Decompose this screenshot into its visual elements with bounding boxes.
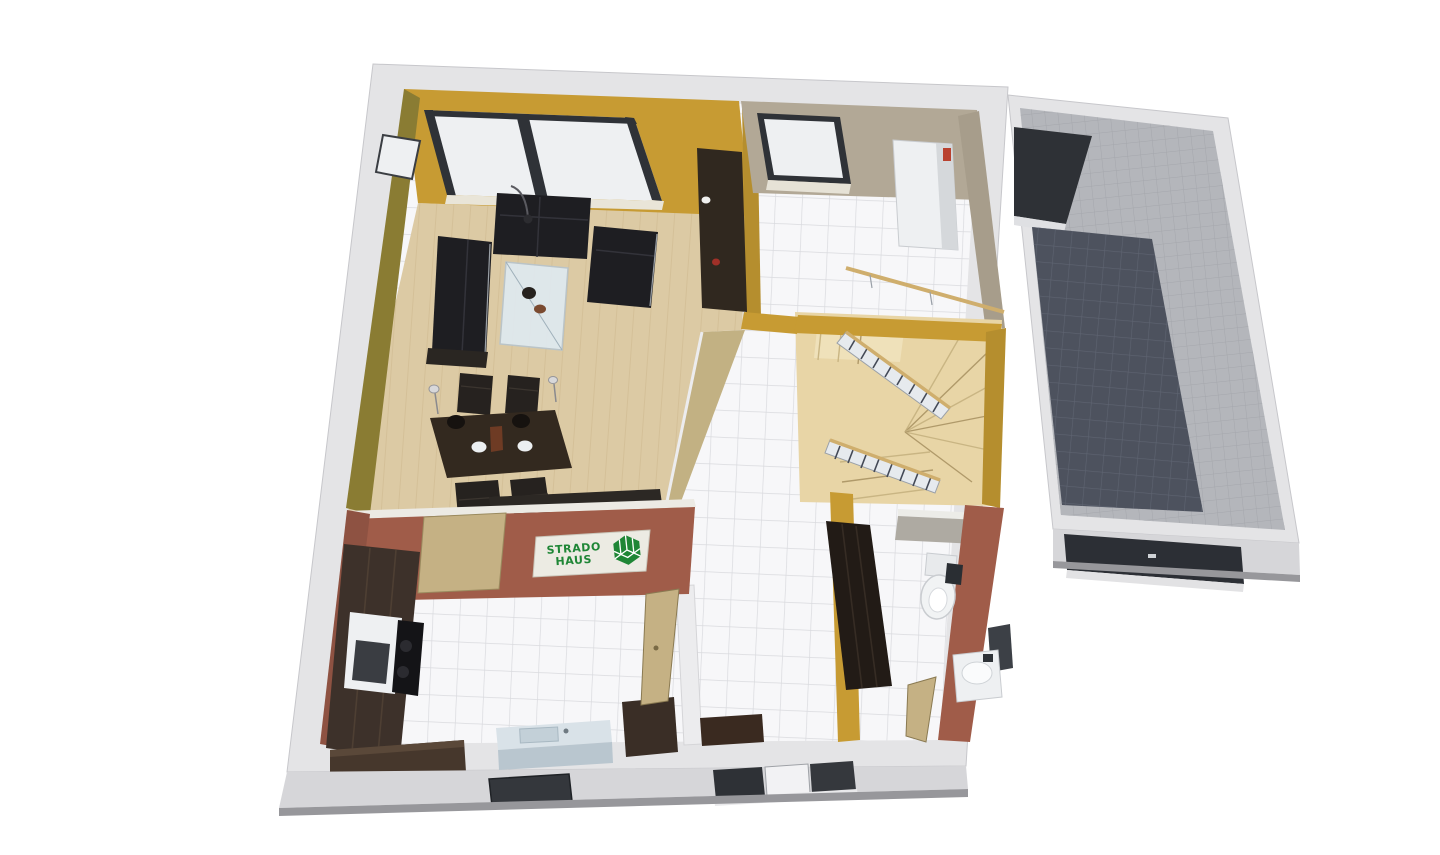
floor-lamp-1[interactable] [429, 385, 439, 393]
toilet-cistern-box [945, 563, 963, 585]
entry-door-glass [765, 764, 810, 796]
burner [400, 640, 412, 652]
door-handle [654, 646, 659, 651]
basin [962, 662, 992, 684]
garage-door-handle [1148, 554, 1156, 558]
west-window-glass[interactable] [376, 135, 420, 179]
sofa-top[interactable] [493, 193, 591, 259]
coffee-table-bowl [522, 287, 536, 299]
sink-basin [520, 727, 559, 743]
burner [397, 666, 409, 678]
dining-chair-n1[interactable] [457, 373, 493, 415]
floor-lamp-2[interactable] [549, 377, 558, 384]
entry-sidelight [810, 761, 856, 793]
brand-name-line2: HAUS [555, 553, 592, 569]
brand-banner: STRADO HAUS [533, 530, 650, 577]
water-heater-label [943, 148, 951, 161]
oven-window [352, 640, 390, 684]
main-house: STRADO HAUS [279, 64, 1013, 816]
highboard[interactable] [697, 148, 747, 312]
faucet [564, 729, 569, 734]
highboard-vase [712, 259, 720, 266]
table-bowl-2 [512, 414, 530, 428]
kitchen-east-cabinet[interactable] [622, 697, 678, 757]
floorplan-3d-view[interactable]: STRADO HAUS [0, 0, 1440, 855]
front-door-open-panel[interactable] [700, 714, 764, 746]
sofa-left[interactable] [432, 236, 492, 357]
floorplan-stage: STRADO HAUS [0, 0, 1440, 855]
table-plate-1 [472, 442, 487, 453]
utility-window-glass[interactable] [764, 119, 843, 178]
arc-floor-lamp-shade [524, 215, 533, 224]
table-bowl-1 [447, 415, 465, 429]
dining-chair-n2[interactable] [505, 375, 540, 416]
basin-accessory [983, 654, 993, 662]
table-vase [490, 426, 503, 452]
coffee-table-decor [534, 305, 546, 314]
armchair[interactable] [587, 226, 658, 308]
highboard-bowl [702, 197, 711, 204]
table-plate-2 [518, 441, 533, 452]
kitchen-door-open-panel[interactable] [418, 513, 506, 593]
